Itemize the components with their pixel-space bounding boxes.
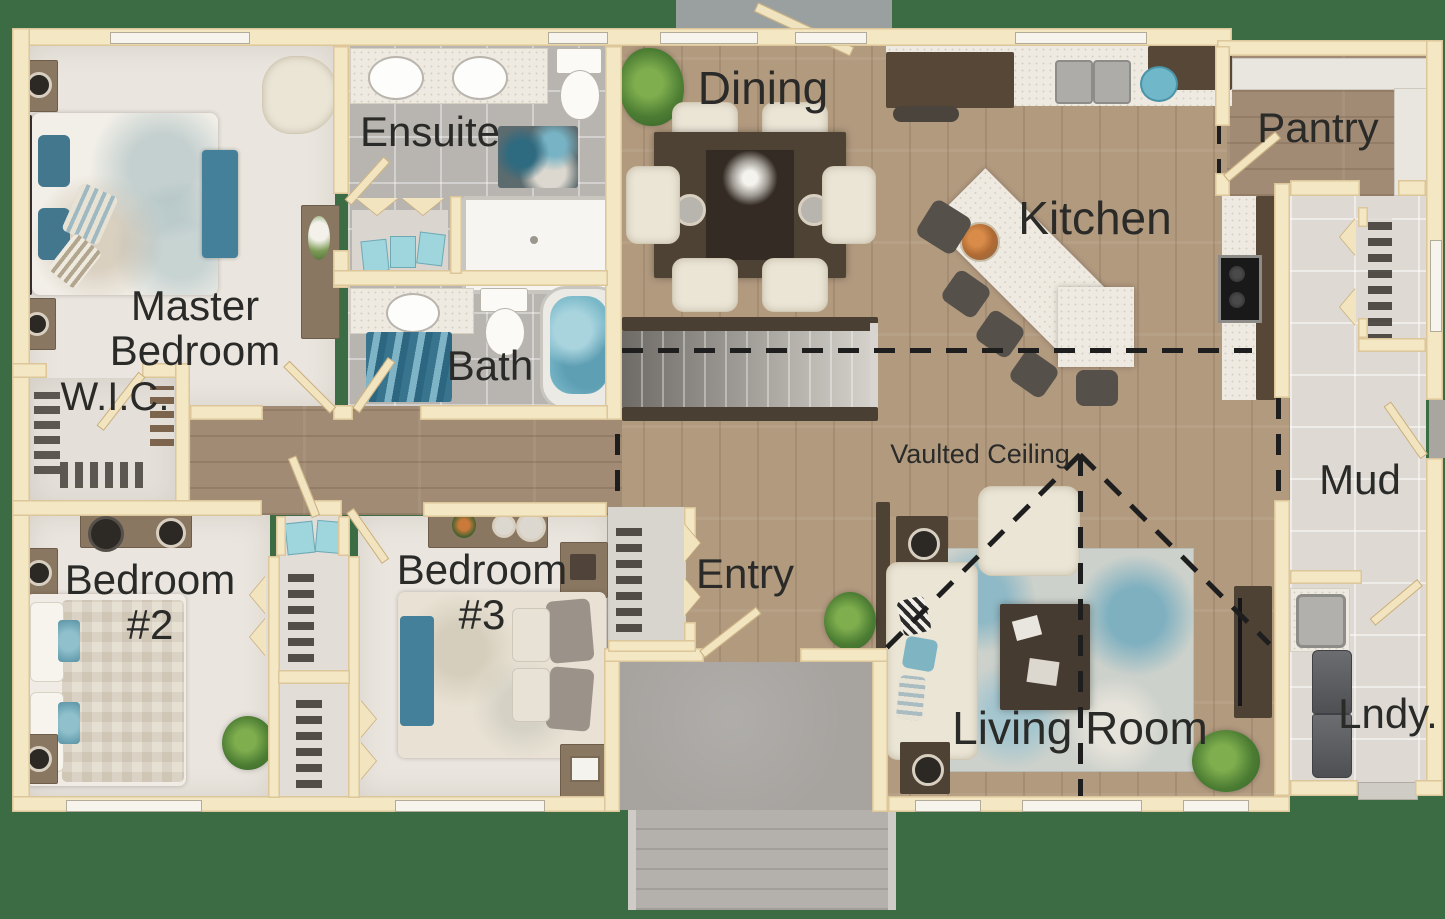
kitchen-coffee-maker [893,106,959,122]
stair-rail-top [622,317,878,331]
mud-closet-clothes [1368,214,1392,342]
master-pillow-teal-1 [38,135,70,187]
dining-chair-bottom-1 [672,258,738,312]
wall-greatroom-east-lower [1274,500,1290,796]
label-wic: W.I.C. [30,376,200,418]
bifold-mud-closet-1 [1340,218,1356,256]
hallway-floor [188,405,622,515]
label-mud: Mud [1308,458,1412,503]
stove-burner-2 [1229,292,1245,308]
entry-plant [824,592,876,650]
window-living-bottom-1 [915,800,981,812]
coffee-table-book-2 [1026,658,1059,686]
sofa-pillow-teal [901,635,938,672]
wall-bottom-right-b [1415,780,1443,796]
window-bed3-bottom [395,800,545,812]
kitchen-dish-teal [1140,66,1178,102]
master-orchid [308,216,330,260]
label-entry: Entry [660,552,830,597]
dining-chair-left [626,166,680,244]
speaker-bottom [912,754,944,786]
wall-kitchen-pantry-a [1215,46,1230,126]
label-living-room: Living Room [920,704,1240,753]
shower-drain [530,236,538,244]
wall-right-upper [1426,40,1443,400]
wall-bed3-top [423,502,607,517]
wall-mud-closet-stub-top [1358,207,1368,227]
wall-entry-front-right [800,648,888,662]
porch-steps [628,810,896,910]
stair-newel [870,323,878,415]
back-door-step [1358,782,1418,800]
bifold-mud-closet-2 [1340,288,1356,326]
wall-bath-hall [420,405,608,420]
wall-closet-divider [278,670,350,684]
wall-bottom-right-a [1290,780,1358,796]
wall-right-lower [1426,458,1443,796]
closet-clothes-bed3 [296,696,322,788]
label-pantry: Pantry [1238,106,1398,151]
wall-ensuite-bath [333,270,608,286]
bed2-pillow-teal-2 [58,702,80,744]
label-ensuite: Ensuite [330,110,530,155]
wall-ensuite-greatroom [605,46,622,420]
laundry-sink [1296,594,1346,648]
label-bedroom2: Bedroom #2 [42,558,258,647]
bed2-plant [222,716,274,770]
window-dining-top-2 [795,32,867,44]
speaker-top [908,528,940,560]
stair-rail-bottom [622,407,878,421]
bed2-desk-speaker [156,518,186,548]
kitchen-sink-2 [1093,60,1131,104]
window-living-bottom-3 [1183,800,1249,812]
window-mud-east [1430,240,1442,332]
bifold-bed3-closet-2 [360,742,376,780]
mud-floor [1290,196,1426,584]
label-vaulted-ceiling: Vaulted Ceiling [880,440,1080,469]
bed3-pillow-light-2 [512,668,550,722]
cased-opening-mud [1276,398,1281,500]
label-bedroom3: Bedroom #3 [374,548,590,637]
wall-greatroom-east-upper [1274,183,1290,398]
porch-landing [620,662,888,810]
wall-shower-closet [450,196,462,274]
ensuite-sink-2 [452,56,508,100]
wall-entry-closet-bottom [608,640,696,652]
cased-opening-pantry [1217,123,1221,175]
wall-mud-closet-bottom [1358,338,1426,352]
hall-linen-towel-1 [284,521,315,556]
master-bench [202,150,238,258]
label-kitchen: Kitchen [995,194,1195,243]
wall-porch-left [604,648,620,812]
bed2-desk-chair [88,516,124,552]
island-stool-4 [1076,370,1118,406]
wall-pantry-mud-b [1398,180,1426,196]
vault-line-horizontal [622,348,1252,353]
wall-mud-closet-stub-bottom [1358,318,1368,338]
dining-centerpiece [722,150,778,206]
linen-towel-1 [360,239,389,274]
window-ensuite-top [548,32,608,44]
label-dining: Dining [663,64,863,113]
ensuite-toilet-bowl [560,70,600,120]
wall-pantry-top [1217,40,1443,56]
wall-bed2-top [12,500,262,516]
bifold-ensuite-closet-2 [402,198,444,215]
bath-sink [386,293,440,333]
stair-tread-lines [622,331,870,407]
bed3-frame [570,756,600,782]
coffee-table [1000,604,1090,710]
wall-left [12,28,30,812]
pantry-shelf-top [1232,58,1428,90]
window-kitchen-top [1015,32,1147,44]
label-master-bedroom: Master Bedroom [40,284,350,373]
window-dining-top-1 [660,32,758,44]
living-armchair [978,486,1080,576]
wall-niche-left [276,516,286,556]
linen-towel-2 [390,236,416,268]
kitchen-stove [1218,255,1262,323]
wall-niche-right [338,516,350,556]
label-bath: Bath [420,344,560,389]
dining-chair-bottom-2 [762,258,828,312]
kitchen-island-end [1058,287,1134,367]
window-bed2-bottom [66,800,202,812]
wall-porch-right [872,648,888,812]
window-living-bottom-2 [1022,800,1142,812]
wall-mud-laundry [1290,570,1362,584]
label-laundry: Lndy. [1328,692,1445,737]
kitchen-sink-1 [1055,60,1093,104]
ensuite-sink-1 [368,56,424,100]
dining-chair-right [822,166,876,244]
wic-clothes-bottom [60,462,144,488]
bifold-bed3-closet-1 [360,700,376,738]
kitchen-cabinet-left [886,52,1014,108]
side-door-step [1429,400,1445,458]
stove-burner-1 [1229,266,1245,282]
bed3-pillow-gray-2 [545,666,594,732]
bifold-ensuite-closet-1 [356,198,398,215]
closet-clothes-bed2 [288,566,314,662]
wall-master-hall [190,405,263,420]
linen-towel-3 [416,232,446,267]
bed3-desk-plate-1 [492,514,516,538]
entry-closet-clothes [616,520,642,632]
wall-pantry-mud-a [1290,180,1360,196]
stairwell [622,317,878,421]
window-master-top [110,32,250,44]
floor-plan: Master Bedroom W.I.C. Ensuite Bath Bedro… [0,0,1445,919]
